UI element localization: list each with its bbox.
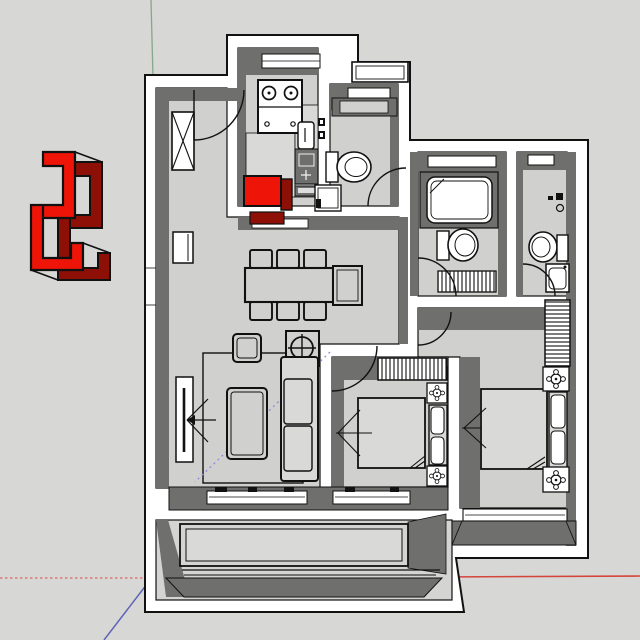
chair[interactable]: [250, 250, 272, 268]
chair[interactable]: [277, 250, 299, 268]
balcony[interactable]: [156, 514, 446, 597]
bathtub[interactable]: [420, 172, 498, 228]
toilet[interactable]: [326, 152, 371, 182]
chair[interactable]: [277, 302, 299, 320]
south-window-wall: [169, 487, 448, 510]
toilet[interactable]: [437, 229, 478, 261]
master-nightstand[interactable]: [543, 367, 569, 391]
master-wardrobe[interactable]: [545, 300, 570, 366]
sofa[interactable]: [281, 357, 318, 481]
left-wall-face: [156, 88, 169, 489]
cutting-board[interactable]: [298, 122, 314, 149]
chair[interactable]: [250, 302, 272, 320]
balcony-right-wedge: [408, 514, 446, 574]
wall-radiator[interactable]: [173, 232, 193, 263]
bath3-west-face: [517, 152, 523, 296]
balcony-front-wall-face: [166, 578, 442, 597]
dining-table[interactable]: [245, 268, 333, 302]
bath2-window: [428, 156, 496, 167]
bed2-wardrobe[interactable]: [378, 358, 447, 380]
bath3-window: [528, 155, 554, 165]
chair[interactable]: [304, 302, 326, 320]
model-view[interactable]: [0, 0, 640, 640]
chair[interactable]: [304, 250, 326, 268]
bed2-west-face: [332, 366, 344, 487]
bed2-nightstand[interactable]: [427, 383, 447, 403]
living-window: [207, 491, 307, 504]
stove[interactable]: [258, 80, 302, 133]
exterior-ledge: [352, 62, 408, 82]
red-axis-line: [432, 576, 640, 577]
master-north-face: [418, 308, 545, 330]
master-west-face: [460, 357, 480, 508]
toilet[interactable]: [529, 232, 568, 262]
pouf[interactable]: [233, 334, 261, 362]
planter-box[interactable]: [180, 524, 408, 566]
side-table[interactable]: [333, 266, 362, 305]
bed2-nightstand[interactable]: [427, 466, 447, 486]
bed2-closet-shelf: [344, 357, 378, 380]
bath2-east-face: [498, 152, 506, 296]
towel-radiator[interactable]: [438, 271, 496, 292]
viewport-canvas[interactable]: [0, 0, 640, 640]
red-box-front-face: [250, 212, 284, 224]
entry-top-wall-face: [156, 88, 238, 101]
bath2-west-face: [410, 152, 418, 296]
shower-tray[interactable]: [315, 185, 341, 211]
dining-east-face: [399, 217, 408, 344]
master-window: [452, 509, 576, 545]
red-box[interactable]: [244, 176, 292, 210]
bed2-window: [333, 491, 410, 504]
master-nightstand[interactable]: [543, 467, 569, 492]
coffee-table[interactable]: [227, 388, 267, 459]
